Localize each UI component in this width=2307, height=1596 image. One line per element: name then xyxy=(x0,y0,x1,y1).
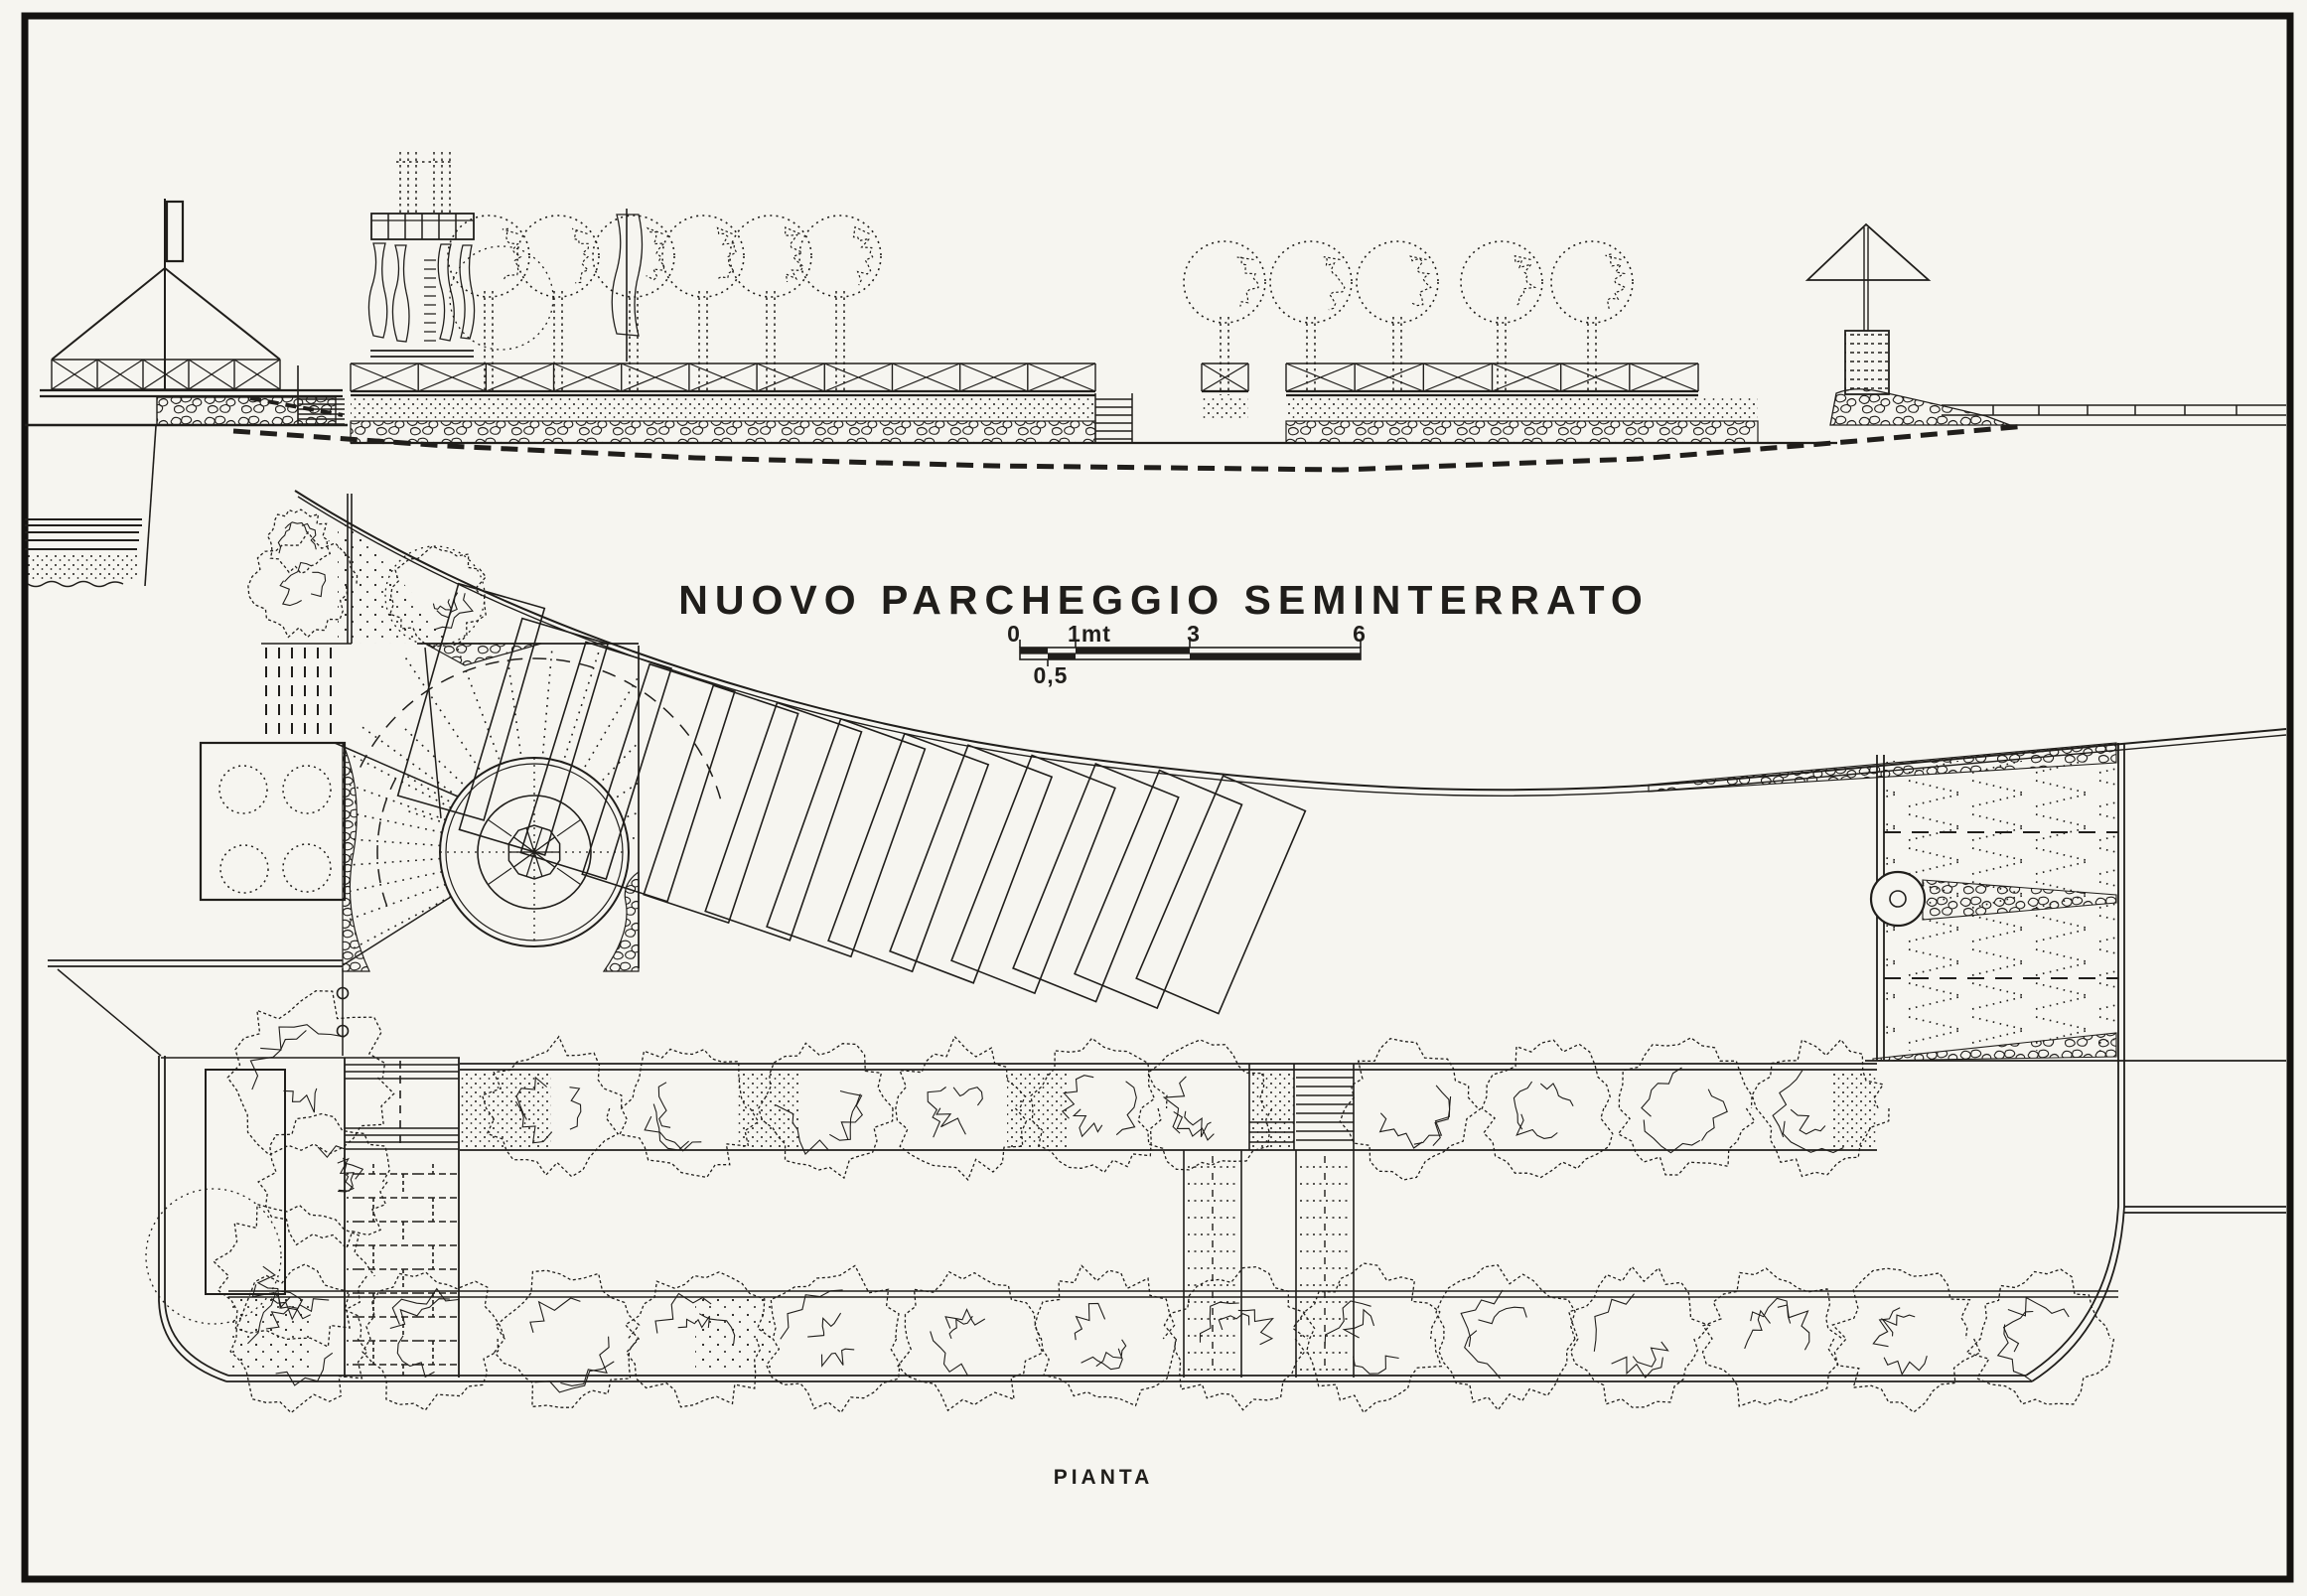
stone-band-left xyxy=(343,743,369,971)
umbrella-kiosk xyxy=(1807,224,2010,425)
upper-planting-band xyxy=(460,1064,1877,1150)
scale-1mt: 1mt xyxy=(1068,621,1111,647)
pergola-tower xyxy=(368,152,553,357)
tent-pavilion xyxy=(52,199,280,389)
railing-right-platform xyxy=(1286,363,1698,391)
scale-bar: 0 1mt 3 6 0,5 xyxy=(1007,621,1367,688)
plan-view xyxy=(48,491,2286,1413)
tree-row-upper xyxy=(483,1037,1889,1180)
stone-wall-band xyxy=(351,421,1095,443)
scale-0: 0 xyxy=(1007,621,1021,647)
existing-road-section xyxy=(25,519,142,587)
stone-wall-band xyxy=(1286,421,1758,443)
pedestrian-ramps xyxy=(1184,1150,1354,1378)
west-stairs xyxy=(345,1058,459,1378)
four-tree-court xyxy=(201,743,345,900)
elevation-view xyxy=(25,152,2286,587)
drawing-title: NUOVO PARCHEGGIO SEMINTERRATO xyxy=(678,577,1650,623)
drawing-sheet: NUOVO PARCHEGGIO SEMINTERRATO 0 1mt 3 6 … xyxy=(0,0,2307,1596)
column xyxy=(1871,872,1925,926)
scale-6: 6 xyxy=(1353,621,1367,647)
lower-planting-band xyxy=(228,1291,2118,1373)
railing-small-block xyxy=(1202,363,1248,391)
elevation-stairs-centre xyxy=(1095,393,1132,443)
scale-05: 0,5 xyxy=(1034,662,1069,688)
stone-wall-band xyxy=(157,397,336,425)
entry-ramp xyxy=(1649,743,2118,1061)
stone-mound xyxy=(1830,389,2010,425)
plan-label: PIANTA xyxy=(1054,1466,1154,1489)
flag xyxy=(167,202,183,261)
dashed-ramp-strip xyxy=(266,648,331,741)
architectural-drawing: NUOVO PARCHEGGIO SEMINTERRATO 0 1mt 3 6 … xyxy=(0,0,2307,1596)
railing-centre-platform xyxy=(351,363,1095,391)
tree-row-lower xyxy=(230,1263,2113,1413)
scale-3: 3 xyxy=(1187,621,1201,647)
